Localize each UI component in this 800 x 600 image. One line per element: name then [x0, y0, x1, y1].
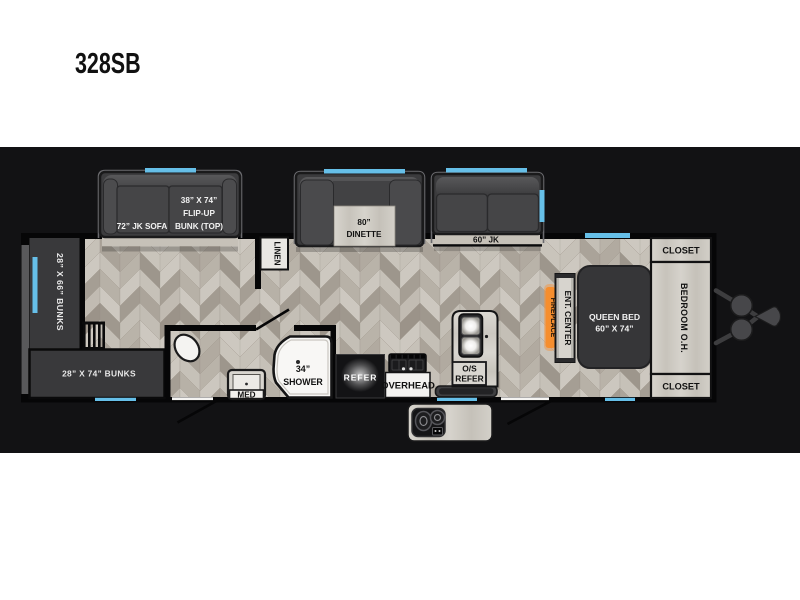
svg-text:CLOSET: CLOSET	[662, 382, 700, 392]
svg-text:28” X 74” BUNKS: 28” X 74” BUNKS	[62, 369, 136, 379]
svg-text:REFER: REFER	[344, 373, 378, 383]
svg-text:60” JK: 60” JK	[473, 236, 499, 245]
svg-text:BUNK (TOP): BUNK (TOP)	[175, 222, 223, 231]
svg-text:MED: MED	[237, 391, 255, 400]
svg-text:SHOWER: SHOWER	[283, 377, 323, 387]
svg-text:28” X 66” BUNKS: 28” X 66” BUNKS	[55, 253, 65, 331]
svg-text:QUEEN BED: QUEEN BED	[589, 312, 640, 322]
svg-text:BEDROOM O.H.: BEDROOM O.H.	[679, 283, 689, 353]
svg-text:72” JK SOFA: 72” JK SOFA	[117, 222, 168, 231]
svg-text:CLOSET: CLOSET	[662, 246, 700, 256]
svg-text:REFER: REFER	[455, 374, 483, 384]
svg-text:ENT. CENTER: ENT. CENTER	[563, 291, 573, 346]
svg-text:80”: 80”	[357, 218, 370, 227]
svg-text:O/S: O/S	[462, 364, 477, 374]
svg-text:34”: 34”	[296, 364, 310, 374]
svg-text:FLIP-UP: FLIP-UP	[183, 209, 215, 218]
svg-text:DINETTE: DINETTE	[346, 230, 382, 239]
svg-text:60” X 74”: 60” X 74”	[595, 324, 633, 334]
svg-text:LINEN: LINEN	[273, 242, 282, 266]
svg-text:38” X 74”: 38” X 74”	[181, 196, 217, 205]
svg-text:OVERHEAD: OVERHEAD	[381, 381, 435, 392]
